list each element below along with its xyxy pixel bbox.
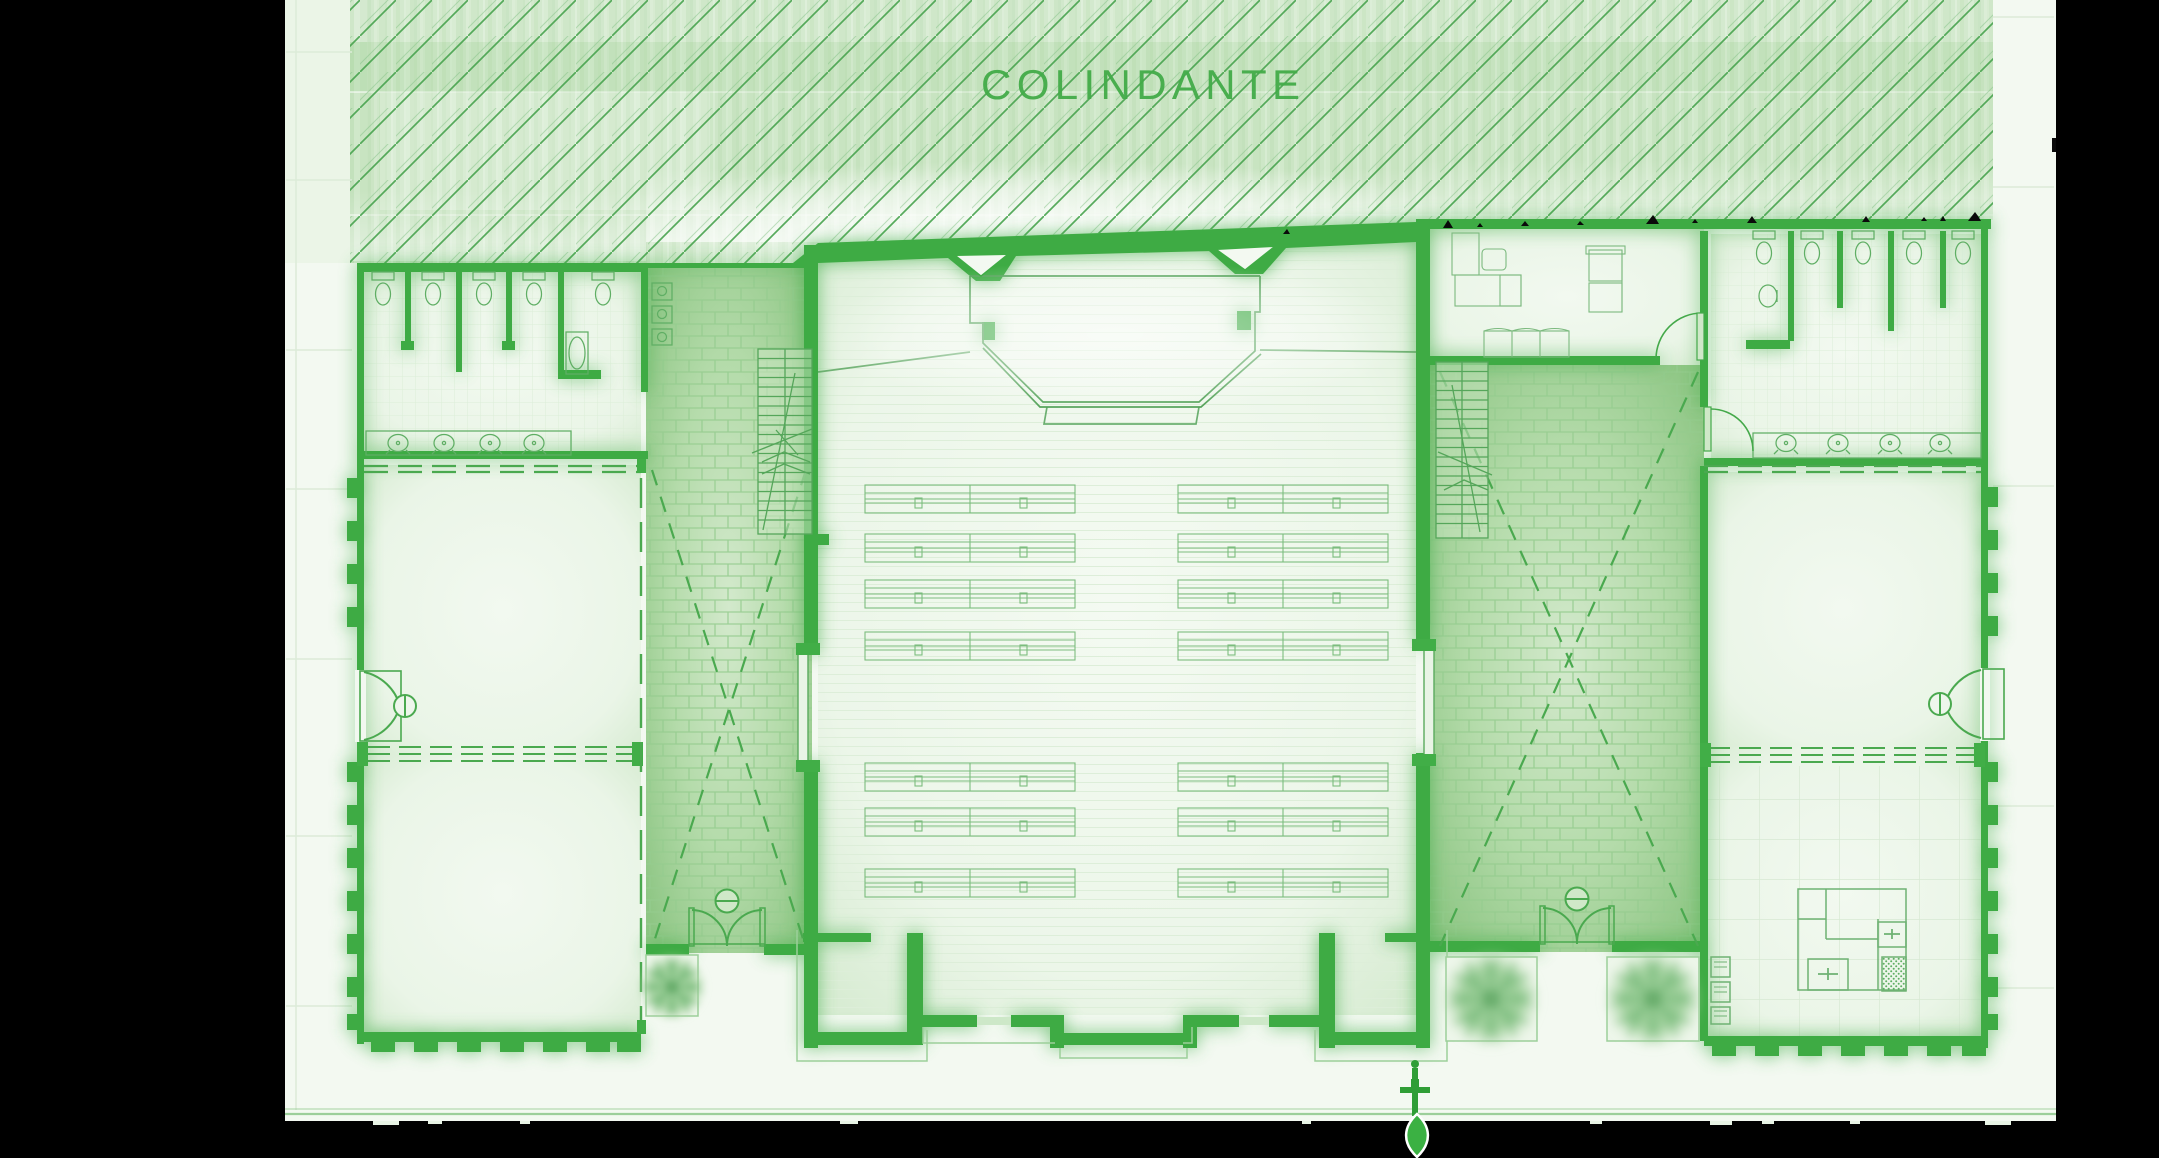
svg-text:COLINDANTE: COLINDANTE xyxy=(981,61,1301,108)
